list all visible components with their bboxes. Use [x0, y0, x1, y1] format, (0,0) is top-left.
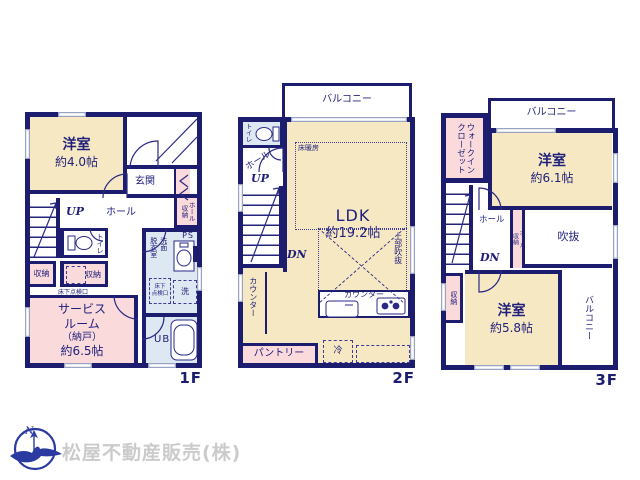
toilet-label: トイレ	[95, 233, 103, 254]
window	[441, 283, 446, 311]
toilet-room-1f: トイレ	[60, 228, 108, 258]
compass-bird-logo: N	[8, 422, 64, 474]
room-size: 約4.0帖	[55, 155, 98, 170]
toilet-icon	[67, 231, 97, 255]
shoe-cabinet	[174, 169, 190, 194]
void-above-label: 上部吹抜	[393, 232, 402, 264]
hall-storage-3f-label: ホール 収納	[511, 230, 524, 248]
room-western-6-1: 洋室 約6.1帖	[488, 133, 612, 210]
ps-label: PS	[182, 231, 194, 241]
floor-label-3f: 3F	[576, 371, 618, 389]
balcony-3f-side: バルコニー	[562, 270, 612, 365]
hall-label-3f: ホール	[479, 215, 505, 226]
bird-icon	[10, 447, 62, 463]
window	[496, 128, 556, 133]
window	[474, 365, 504, 370]
floor-label-1f: 1F	[160, 369, 202, 387]
underfloor-hatch-2: 床下 点検口	[149, 278, 171, 304]
toilet-room-2f: トイレ	[243, 122, 283, 148]
balcony-3f-top: バルコニー	[488, 98, 615, 131]
senmen-label: 洗面	[159, 237, 167, 251]
window	[510, 365, 540, 370]
window	[291, 117, 407, 122]
window	[613, 153, 618, 183]
stairs-dn-label-3f: DN	[480, 251, 500, 264]
storage-right-1f: 収納	[60, 261, 108, 287]
side-counter-label: カウンター	[248, 277, 257, 317]
floor-label-2f: 2F	[373, 369, 415, 387]
window	[410, 226, 415, 274]
floor-plan-1f: 洋室 約4.0帖 玄関 UP ホール ホール 収納 トイレ	[25, 112, 202, 368]
stairs-dn-label-2f: DN	[287, 248, 307, 261]
room-western-5-8: 洋室 約5.8帖	[465, 270, 562, 365]
datsui-label: 脱衣室	[149, 237, 157, 258]
service-room: サービス ルーム （納戸） 約6.5帖	[30, 295, 138, 363]
hall-label: ホール	[106, 207, 136, 220]
floor-heating-area-1: 床暖房	[295, 142, 407, 230]
hall-storage-3f: ホール 収納	[510, 210, 525, 268]
toilet-icon	[253, 123, 281, 145]
side-counter-edge	[265, 272, 267, 334]
window	[148, 363, 176, 368]
window	[25, 307, 30, 337]
genkan-label: 玄関	[135, 176, 155, 189]
window	[58, 112, 86, 117]
sink-icon	[325, 300, 359, 318]
compass-north-letter: N	[24, 426, 35, 437]
hall-storage-1f: ホール 収納	[174, 198, 197, 228]
room-western-4-0: 洋室 約4.0帖	[30, 117, 127, 194]
void-room: 吹抜	[525, 210, 612, 268]
washbasin-icon	[173, 240, 195, 272]
floor-plan-2f: LDK 約19.2帖 床暖房 床暖房 上部吹抜 トイレ ホール UP DN カウ…	[238, 117, 415, 368]
storage-dashed-outline	[66, 266, 86, 284]
storage-3f: 収納	[446, 273, 463, 323]
hall-label-2f: ホール	[244, 150, 273, 174]
stairs-up-label-2f: UP	[251, 172, 269, 185]
floorplan-canvas: 洋室 約4.0帖 玄関 UP ホール ホール 収納 トイレ	[0, 0, 640, 480]
unit-bath: UB	[142, 317, 197, 363]
pipe-shaft	[193, 246, 197, 262]
bathtub-icon	[170, 319, 198, 361]
company-name: 松屋不動産販売(株)	[62, 438, 241, 465]
storage-left-1f: 収納	[30, 261, 56, 287]
stairs-up-label: UP	[66, 205, 84, 218]
washroom: 脱衣室 洗面 PS 床下 点検口 洗	[142, 228, 197, 317]
room-genkan: 玄関	[127, 169, 197, 198]
stairs-3f	[446, 185, 473, 270]
walk-in-closet: ウォークイン クローゼット	[441, 113, 488, 183]
window	[64, 363, 92, 368]
ub-label: UB	[154, 334, 170, 347]
window	[197, 267, 202, 291]
window	[25, 129, 30, 159]
window	[238, 184, 243, 212]
kitchen-counter: カウンター	[318, 290, 410, 318]
stairs-2f	[243, 186, 283, 268]
hall-storage-label: ホール 収納	[180, 202, 194, 222]
fridge-space: 冷	[323, 340, 353, 363]
laundry-space: 洗	[173, 280, 197, 304]
stairs-1f	[30, 198, 60, 258]
window	[238, 274, 243, 302]
window	[613, 225, 618, 259]
window	[410, 336, 415, 360]
kitchen-counter-label: カウンター	[320, 290, 408, 300]
pantry: パントリー	[243, 343, 318, 363]
wic-label: ウォークイン クローゼット	[455, 123, 474, 174]
dashed-cupboard-space	[356, 345, 410, 363]
entrance-porch	[127, 117, 197, 169]
room-label: 洋室	[63, 137, 91, 155]
